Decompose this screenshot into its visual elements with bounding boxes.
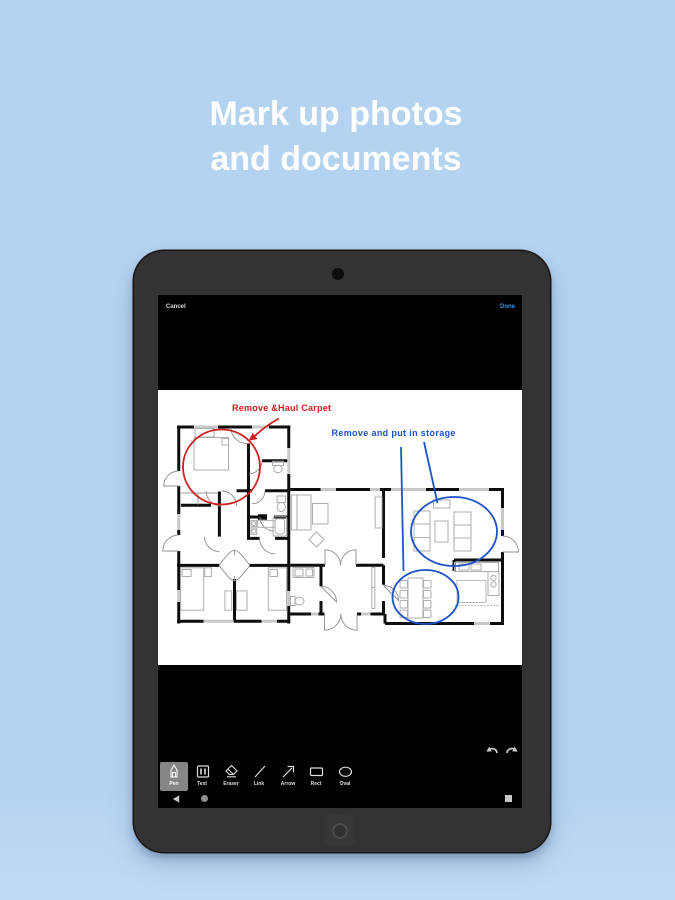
- svg-text:Remove and put in storage: Remove and put in storage: [332, 428, 456, 438]
- svg-text:Remove &Haul Carpet: Remove &Haul Carpet: [232, 403, 331, 413]
